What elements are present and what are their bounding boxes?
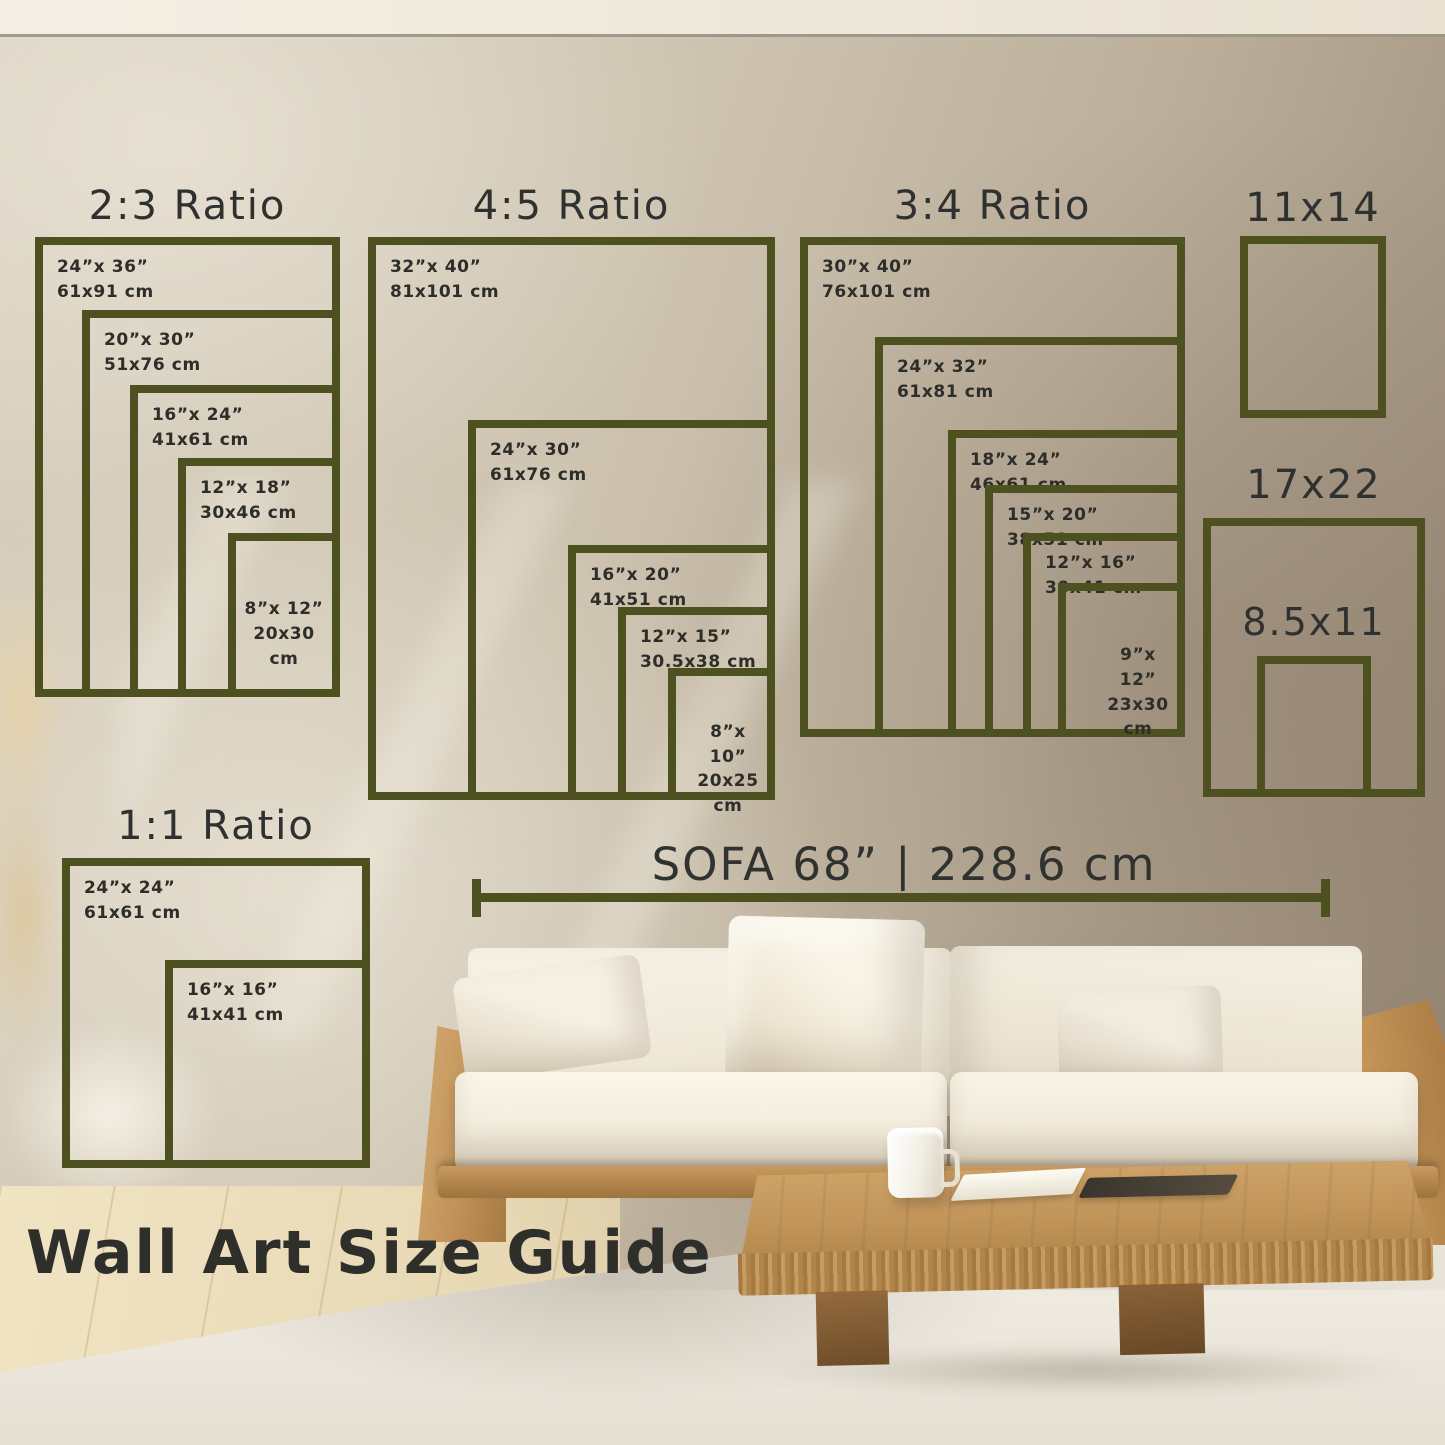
coffee-mug	[887, 1127, 945, 1198]
page-title: Wall Art Size Guide	[26, 1218, 713, 1288]
ratio-2-3-title: 2:3 Ratio	[35, 183, 340, 229]
sofa-measure-label: SOFA 68” | 228.6 cm	[504, 838, 1304, 891]
size-box-8x10: 8”x 10”20x25 cm	[668, 668, 775, 800]
size-label-20x30: 20”x 30”51x76 cm	[104, 328, 201, 377]
size-label-30x40: 30”x 40”76x101 cm	[822, 255, 931, 304]
size-label-8x12: 8”x 12”20x30 cm	[236, 597, 332, 671]
size-title-17x22: 17x22	[1203, 462, 1425, 508]
size-label-24x36: 24”x 36”61x91 cm	[57, 255, 154, 304]
ratio-4-5-title: 4:5 Ratio	[368, 183, 775, 229]
size-box-16x16: 16”x 16”41x41 cm	[165, 960, 370, 1168]
mug-handle	[938, 1149, 960, 1187]
remote-control	[1078, 1174, 1238, 1198]
measure-line	[472, 893, 1330, 902]
size-label-16x24: 16”x 24”41x61 cm	[152, 403, 249, 452]
measure-line-left-cap	[472, 879, 481, 917]
size-label-12x15: 12”x 15”30.5x38 cm	[640, 625, 756, 674]
size-label-16x16: 16”x 16”41x41 cm	[187, 978, 284, 1027]
size-label-24x24: 24”x 24”61x61 cm	[84, 876, 181, 925]
size-label-24x30: 24”x 30”61x76 cm	[490, 438, 587, 487]
table-leg	[1119, 1283, 1206, 1355]
ratio-1-1-title: 1:1 Ratio	[62, 803, 370, 849]
measure-line-right-cap	[1321, 879, 1330, 917]
size-box-11x14	[1240, 236, 1386, 418]
size-box-8-5x11	[1257, 656, 1371, 797]
size-label-8x10: 8”x 10”20x25 cm	[689, 720, 767, 819]
size-box-8x12: 8”x 12”20x30 cm	[228, 533, 340, 697]
size-box-9x12: 9”x 12”23x30 cm	[1058, 583, 1185, 737]
size-title-11x14: 11x14	[1240, 185, 1386, 231]
size-label-24x32: 24”x 32”61x81 cm	[897, 355, 994, 404]
size-label-16x20: 16”x 20”41x51 cm	[590, 563, 687, 612]
ratio-3-4-title: 3:4 Ratio	[800, 183, 1185, 229]
table-leg	[816, 1290, 890, 1366]
size-title-8-5x11: 8.5x11	[1203, 600, 1425, 644]
size-label-9x12: 9”x 12”23x30 cm	[1099, 643, 1177, 742]
room-scene: 2:3 Ratio 24”x 36”61x91 cm 20”x 30”51x76…	[0, 0, 1445, 1445]
size-label-32x40: 32”x 40”81x101 cm	[390, 255, 499, 304]
size-label-12x18: 12”x 18”30x46 cm	[200, 476, 297, 525]
